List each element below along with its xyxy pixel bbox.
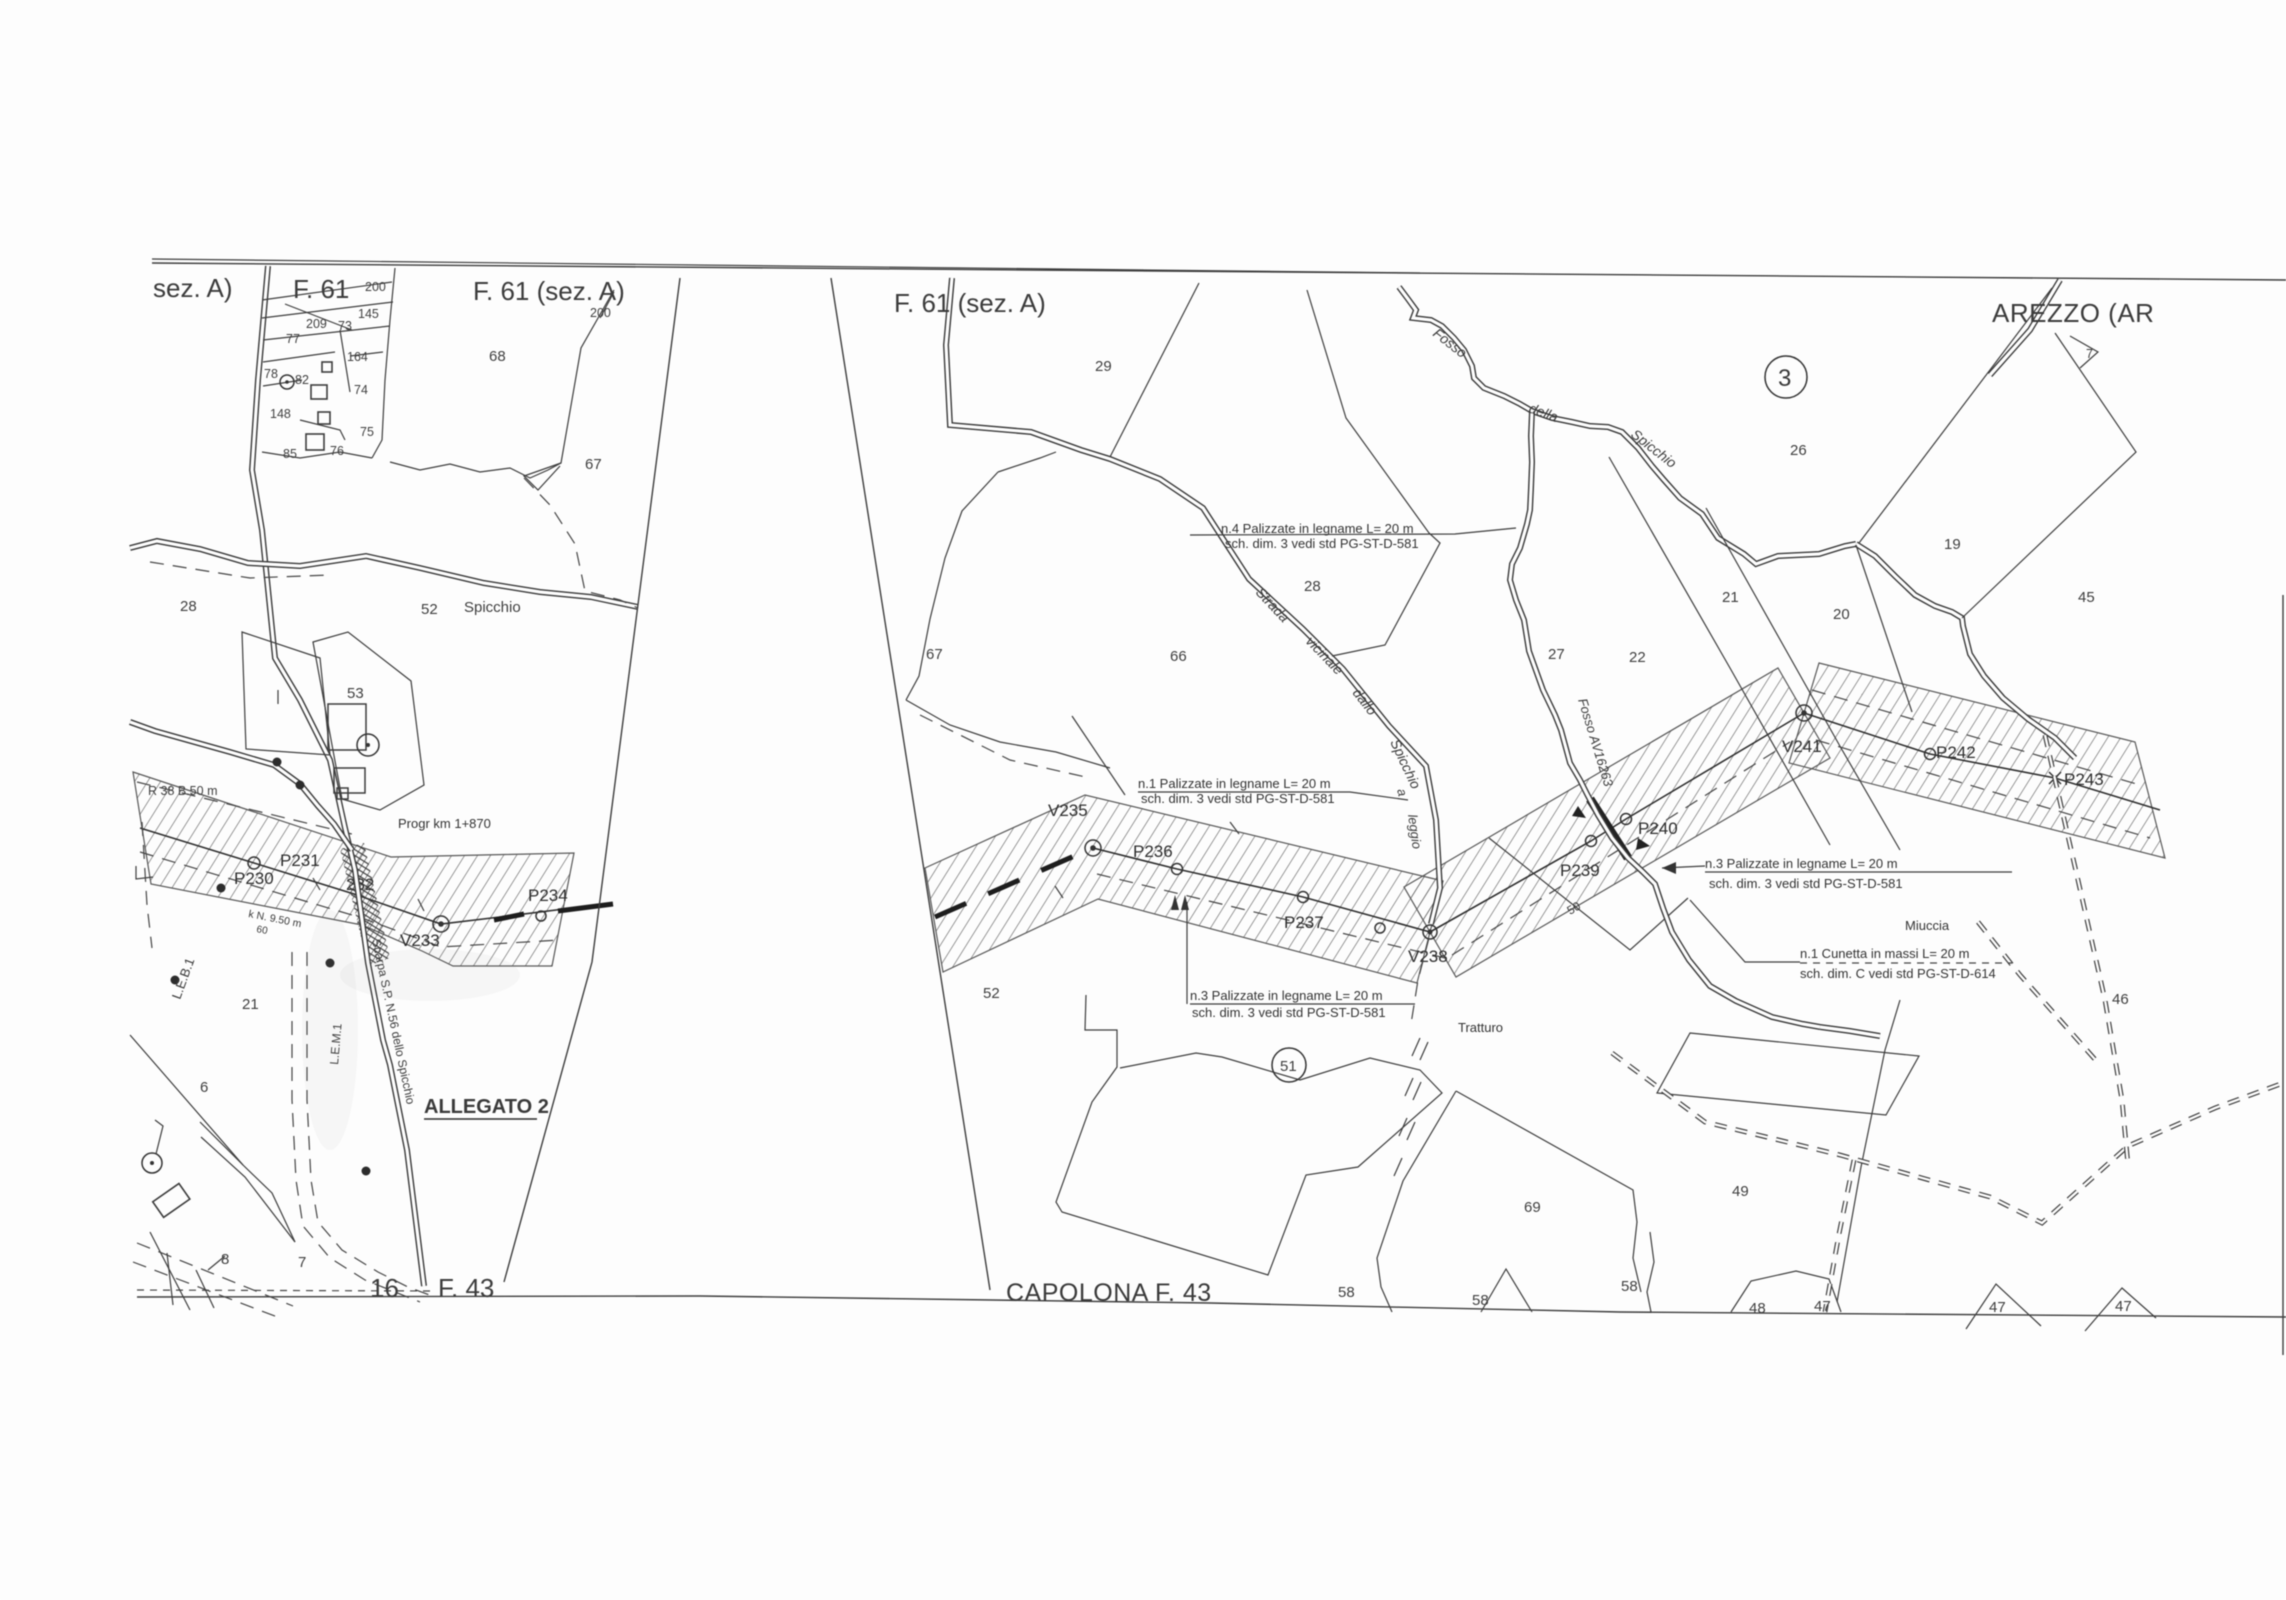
svg-text:26: 26 — [1790, 442, 1807, 459]
svg-text:n.1 Cunetta in massi L= 20 m: n.1 Cunetta in massi L= 20 m — [1800, 946, 1969, 961]
svg-text:69: 69 — [1524, 1199, 1541, 1216]
svg-text:V238: V238 — [1408, 947, 1448, 966]
svg-text:74: 74 — [354, 383, 368, 397]
svg-text:45: 45 — [2078, 589, 2095, 606]
svg-text:sch. dim. 3 vedi std PG-ST-D-5: sch. dim. 3 vedi std PG-ST-D-581 — [1192, 1005, 1386, 1020]
svg-text:7: 7 — [298, 1254, 306, 1271]
svg-text:27: 27 — [1548, 646, 1565, 663]
svg-text:75: 75 — [360, 425, 374, 439]
svg-text:sch. dim. 3 vedi std PG-ST-D-5: sch. dim. 3 vedi std PG-ST-D-581 — [1709, 876, 1903, 891]
svg-text:73: 73 — [338, 319, 352, 333]
svg-text:Spicchio: Spicchio — [464, 599, 521, 616]
svg-text:R 38 B.50 m: R 38 B.50 m — [148, 784, 217, 798]
svg-text:V233: V233 — [400, 931, 440, 950]
svg-text:51: 51 — [1280, 1058, 1297, 1075]
svg-text:n.1 Palizzate in legname L= 20: n.1 Palizzate in legname L= 20 m — [1138, 776, 1331, 791]
svg-text:P234: P234 — [528, 886, 568, 905]
svg-text:16: 16 — [370, 1273, 399, 1303]
svg-text:Miuccia: Miuccia — [1905, 918, 1950, 933]
svg-text:P237: P237 — [1284, 913, 1324, 932]
svg-text:21: 21 — [242, 996, 259, 1013]
svg-text:F. 61 (sez. A): F. 61 (sez. A) — [894, 288, 1046, 318]
svg-text:6: 6 — [200, 1079, 208, 1096]
svg-text:58: 58 — [1621, 1278, 1638, 1295]
svg-text:67: 67 — [585, 456, 602, 473]
svg-text:148: 148 — [270, 407, 291, 421]
svg-text:164: 164 — [347, 350, 368, 364]
svg-text:Tratturo: Tratturo — [1458, 1020, 1503, 1035]
svg-text:77: 77 — [286, 332, 300, 346]
svg-text:V241: V241 — [1782, 737, 1822, 756]
svg-text:P240: P240 — [1638, 819, 1678, 838]
svg-text:145: 145 — [358, 307, 379, 321]
svg-text:AREZZO (AR: AREZZO (AR — [1992, 298, 2154, 328]
svg-text:ALLEGATO 2: ALLEGATO 2 — [424, 1096, 549, 1118]
svg-text:68: 68 — [489, 348, 506, 365]
svg-text:n.3 Palizzate in legname L= 20: n.3 Palizzate in legname L= 20 m — [1705, 856, 1898, 871]
svg-text:21: 21 — [1722, 589, 1739, 606]
svg-text:67: 67 — [926, 646, 943, 663]
svg-text:58: 58 — [1338, 1284, 1355, 1301]
svg-text:52: 52 — [421, 601, 438, 618]
svg-text:CAPOLONA F. 43: CAPOLONA F. 43 — [1006, 1279, 1212, 1307]
svg-text:Progr km 1+870: Progr km 1+870 — [398, 816, 491, 831]
svg-text:F. 61 (sez. A): F. 61 (sez. A) — [473, 276, 625, 306]
svg-text:28: 28 — [180, 598, 197, 615]
svg-text:sch. dim. C vedi std PG-ST-D-6: sch. dim. C vedi std PG-ST-D-614 — [1800, 966, 1996, 981]
svg-text:76: 76 — [330, 444, 344, 458]
svg-text:V235: V235 — [1048, 801, 1088, 820]
svg-text:209: 209 — [306, 317, 327, 331]
svg-text:P230: P230 — [234, 869, 274, 888]
svg-text:F. 61: F. 61 — [293, 274, 349, 304]
svg-text:58: 58 — [1472, 1292, 1489, 1309]
svg-text:7: 7 — [2086, 347, 2093, 361]
svg-text:200: 200 — [590, 306, 611, 320]
svg-text:47: 47 — [2115, 1298, 2132, 1315]
svg-text:47: 47 — [1989, 1299, 2006, 1316]
svg-text:85: 85 — [283, 447, 297, 461]
svg-text:3: 3 — [1778, 365, 1791, 392]
svg-text:29: 29 — [1095, 358, 1112, 375]
svg-text:P231: P231 — [280, 851, 320, 870]
svg-text:8: 8 — [221, 1251, 229, 1268]
svg-text:sch. dim. 3 vedi std PG-ST-D-5: sch. dim. 3 vedi std PG-ST-D-581 — [1225, 536, 1419, 551]
svg-text:66: 66 — [1170, 648, 1187, 665]
svg-text:sez. A): sez. A) — [153, 273, 232, 303]
svg-text:20: 20 — [1833, 606, 1850, 623]
svg-text:22: 22 — [1629, 649, 1646, 666]
svg-text:47: 47 — [1814, 1298, 1831, 1315]
svg-text:F. 43: F. 43 — [438, 1273, 494, 1303]
svg-text:48: 48 — [1749, 1300, 1766, 1317]
svg-text:sch. dim. 3 vedi std PG-ST-D-5: sch. dim. 3 vedi std PG-ST-D-581 — [1141, 791, 1335, 806]
svg-text:200: 200 — [365, 280, 386, 294]
svg-text:53: 53 — [347, 685, 364, 702]
svg-text:n.3 Palizzate in legname L= 20: n.3 Palizzate in legname L= 20 m — [1190, 988, 1383, 1003]
svg-text:28: 28 — [1304, 578, 1321, 595]
svg-text:19: 19 — [1944, 536, 1961, 553]
svg-text:52: 52 — [983, 985, 1000, 1002]
svg-text:49: 49 — [1732, 1183, 1749, 1200]
svg-text:82: 82 — [295, 373, 309, 387]
svg-text:P243: P243 — [2064, 770, 2104, 789]
svg-text:78: 78 — [264, 367, 278, 381]
svg-text:P239: P239 — [1560, 861, 1600, 880]
svg-text:P236: P236 — [1133, 842, 1173, 861]
svg-text:P242: P242 — [1936, 743, 1976, 762]
svg-text:46: 46 — [2112, 991, 2129, 1008]
